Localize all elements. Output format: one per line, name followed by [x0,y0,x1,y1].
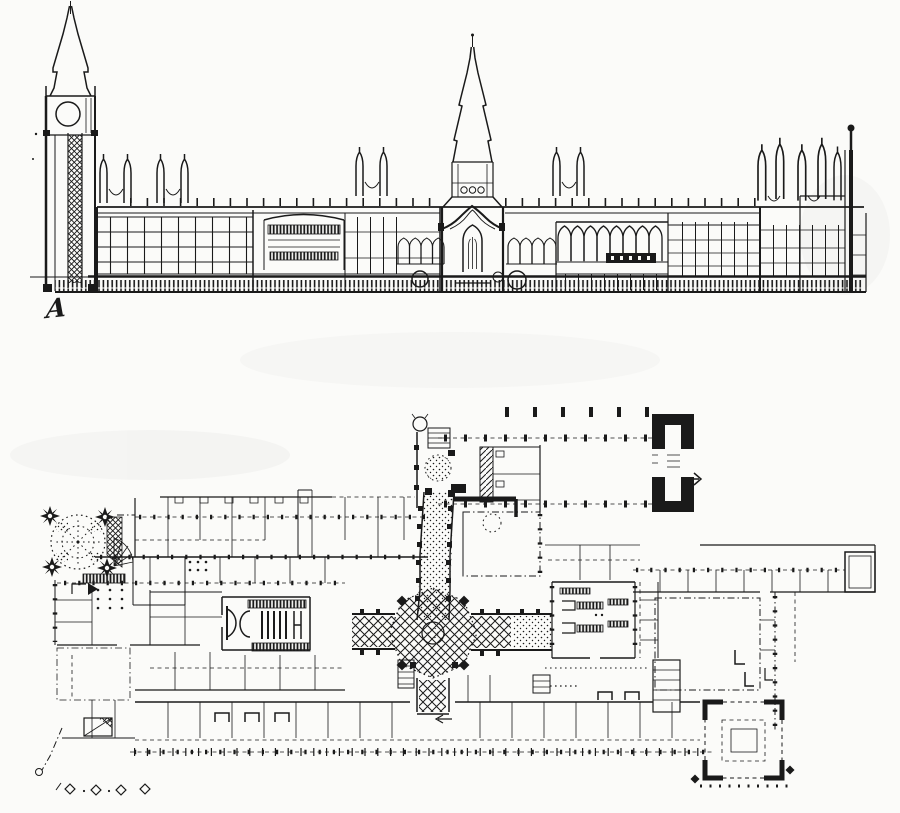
paper-background [0,0,900,813]
section-marker-label: A [46,293,67,325]
scanned-architectural-figure: A [0,0,900,813]
architecture-figure-canvas [0,0,900,813]
